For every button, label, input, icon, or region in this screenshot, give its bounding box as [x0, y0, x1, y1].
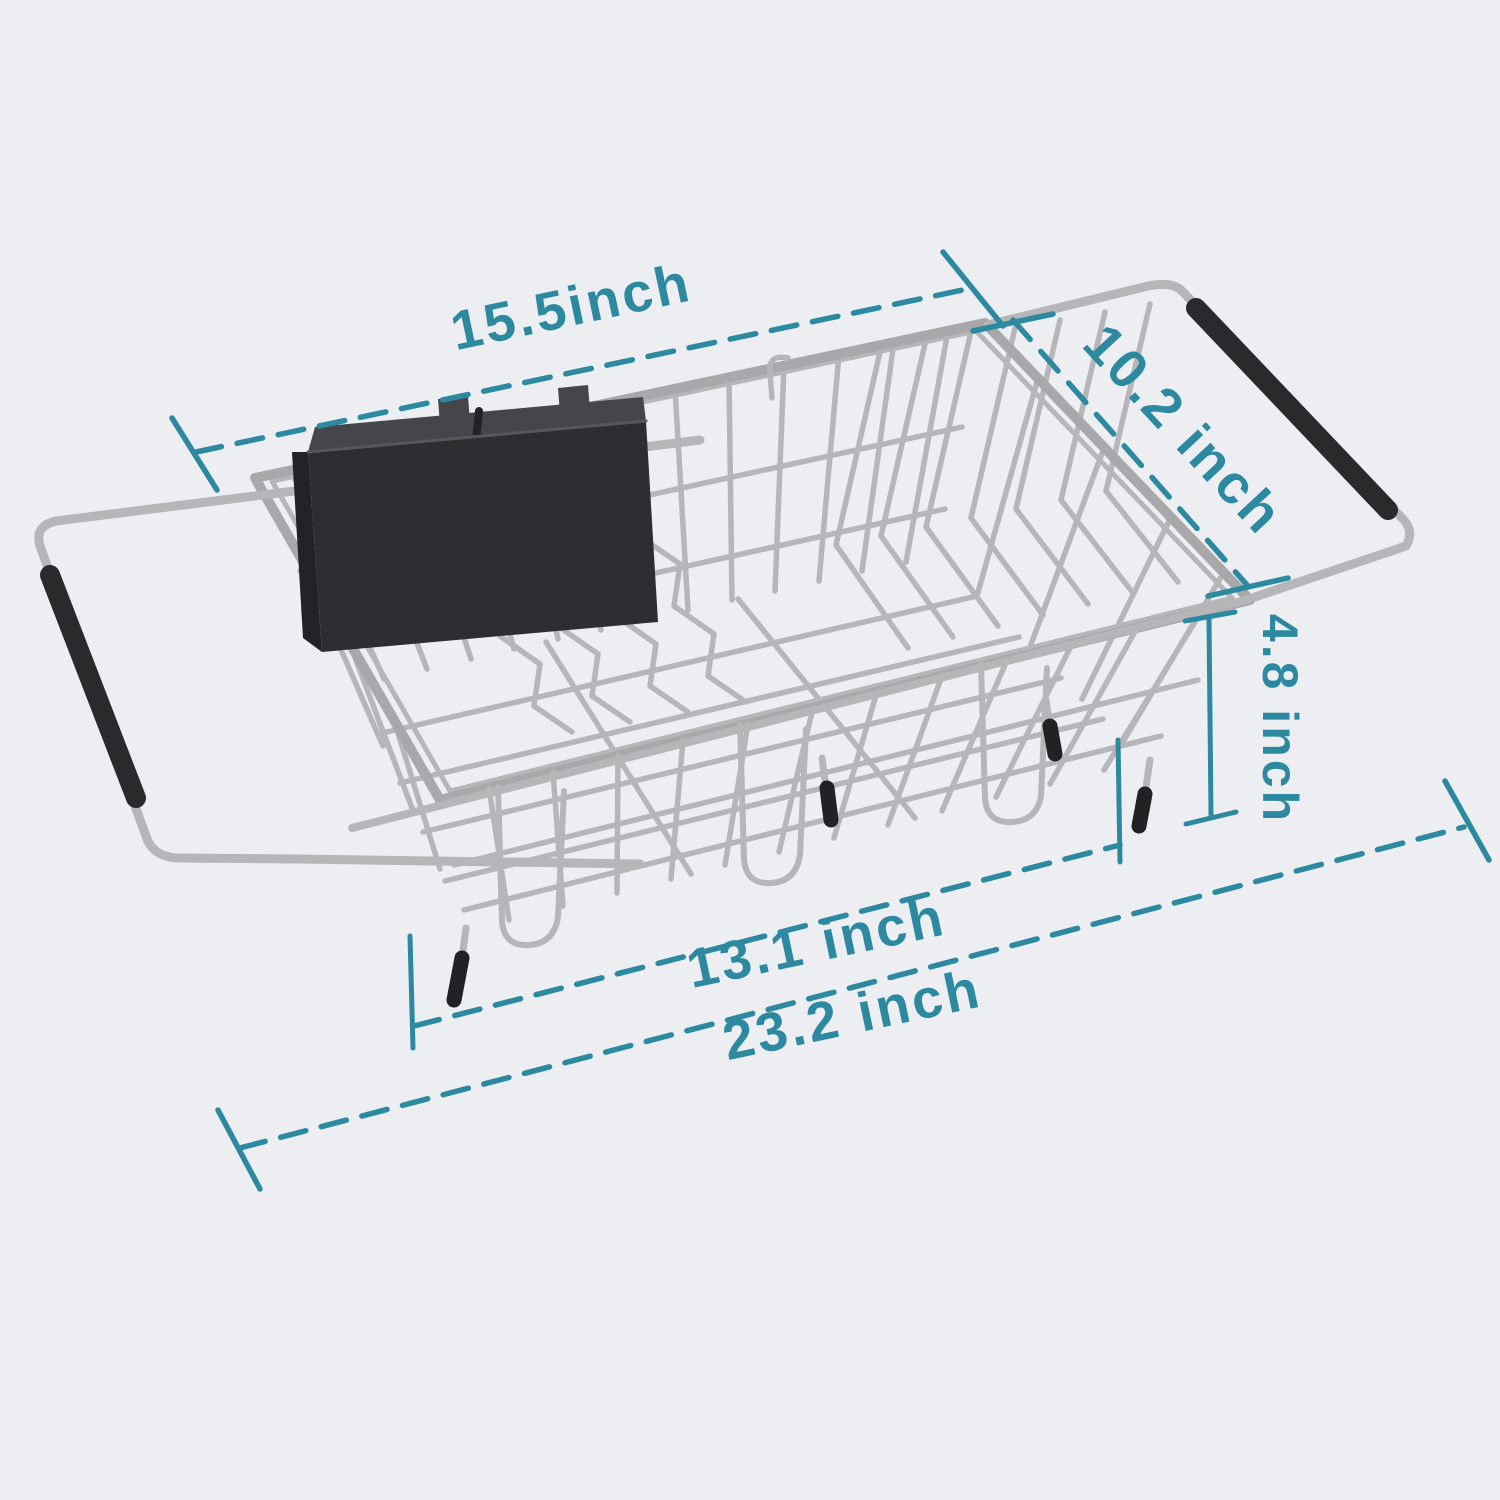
- dimension-label-height: 4.8 inch: [1252, 614, 1308, 824]
- utensil-caddy-front-face: [308, 421, 658, 652]
- product-dimension-diagram: 15.5inch 10.2 inch 4.8 inch: [0, 0, 1500, 1500]
- foot-tip: [827, 788, 831, 820]
- foot-tip: [1050, 726, 1055, 754]
- left-handle-lower-bar: [300, 859, 640, 864]
- extension-line-start: [410, 936, 413, 1048]
- extension-line-end: [1118, 740, 1120, 862]
- utensil-caddy: [292, 385, 658, 652]
- dimension-line: [1209, 619, 1211, 815]
- foot-tip: [454, 958, 462, 1000]
- foot-tip: [1139, 794, 1145, 826]
